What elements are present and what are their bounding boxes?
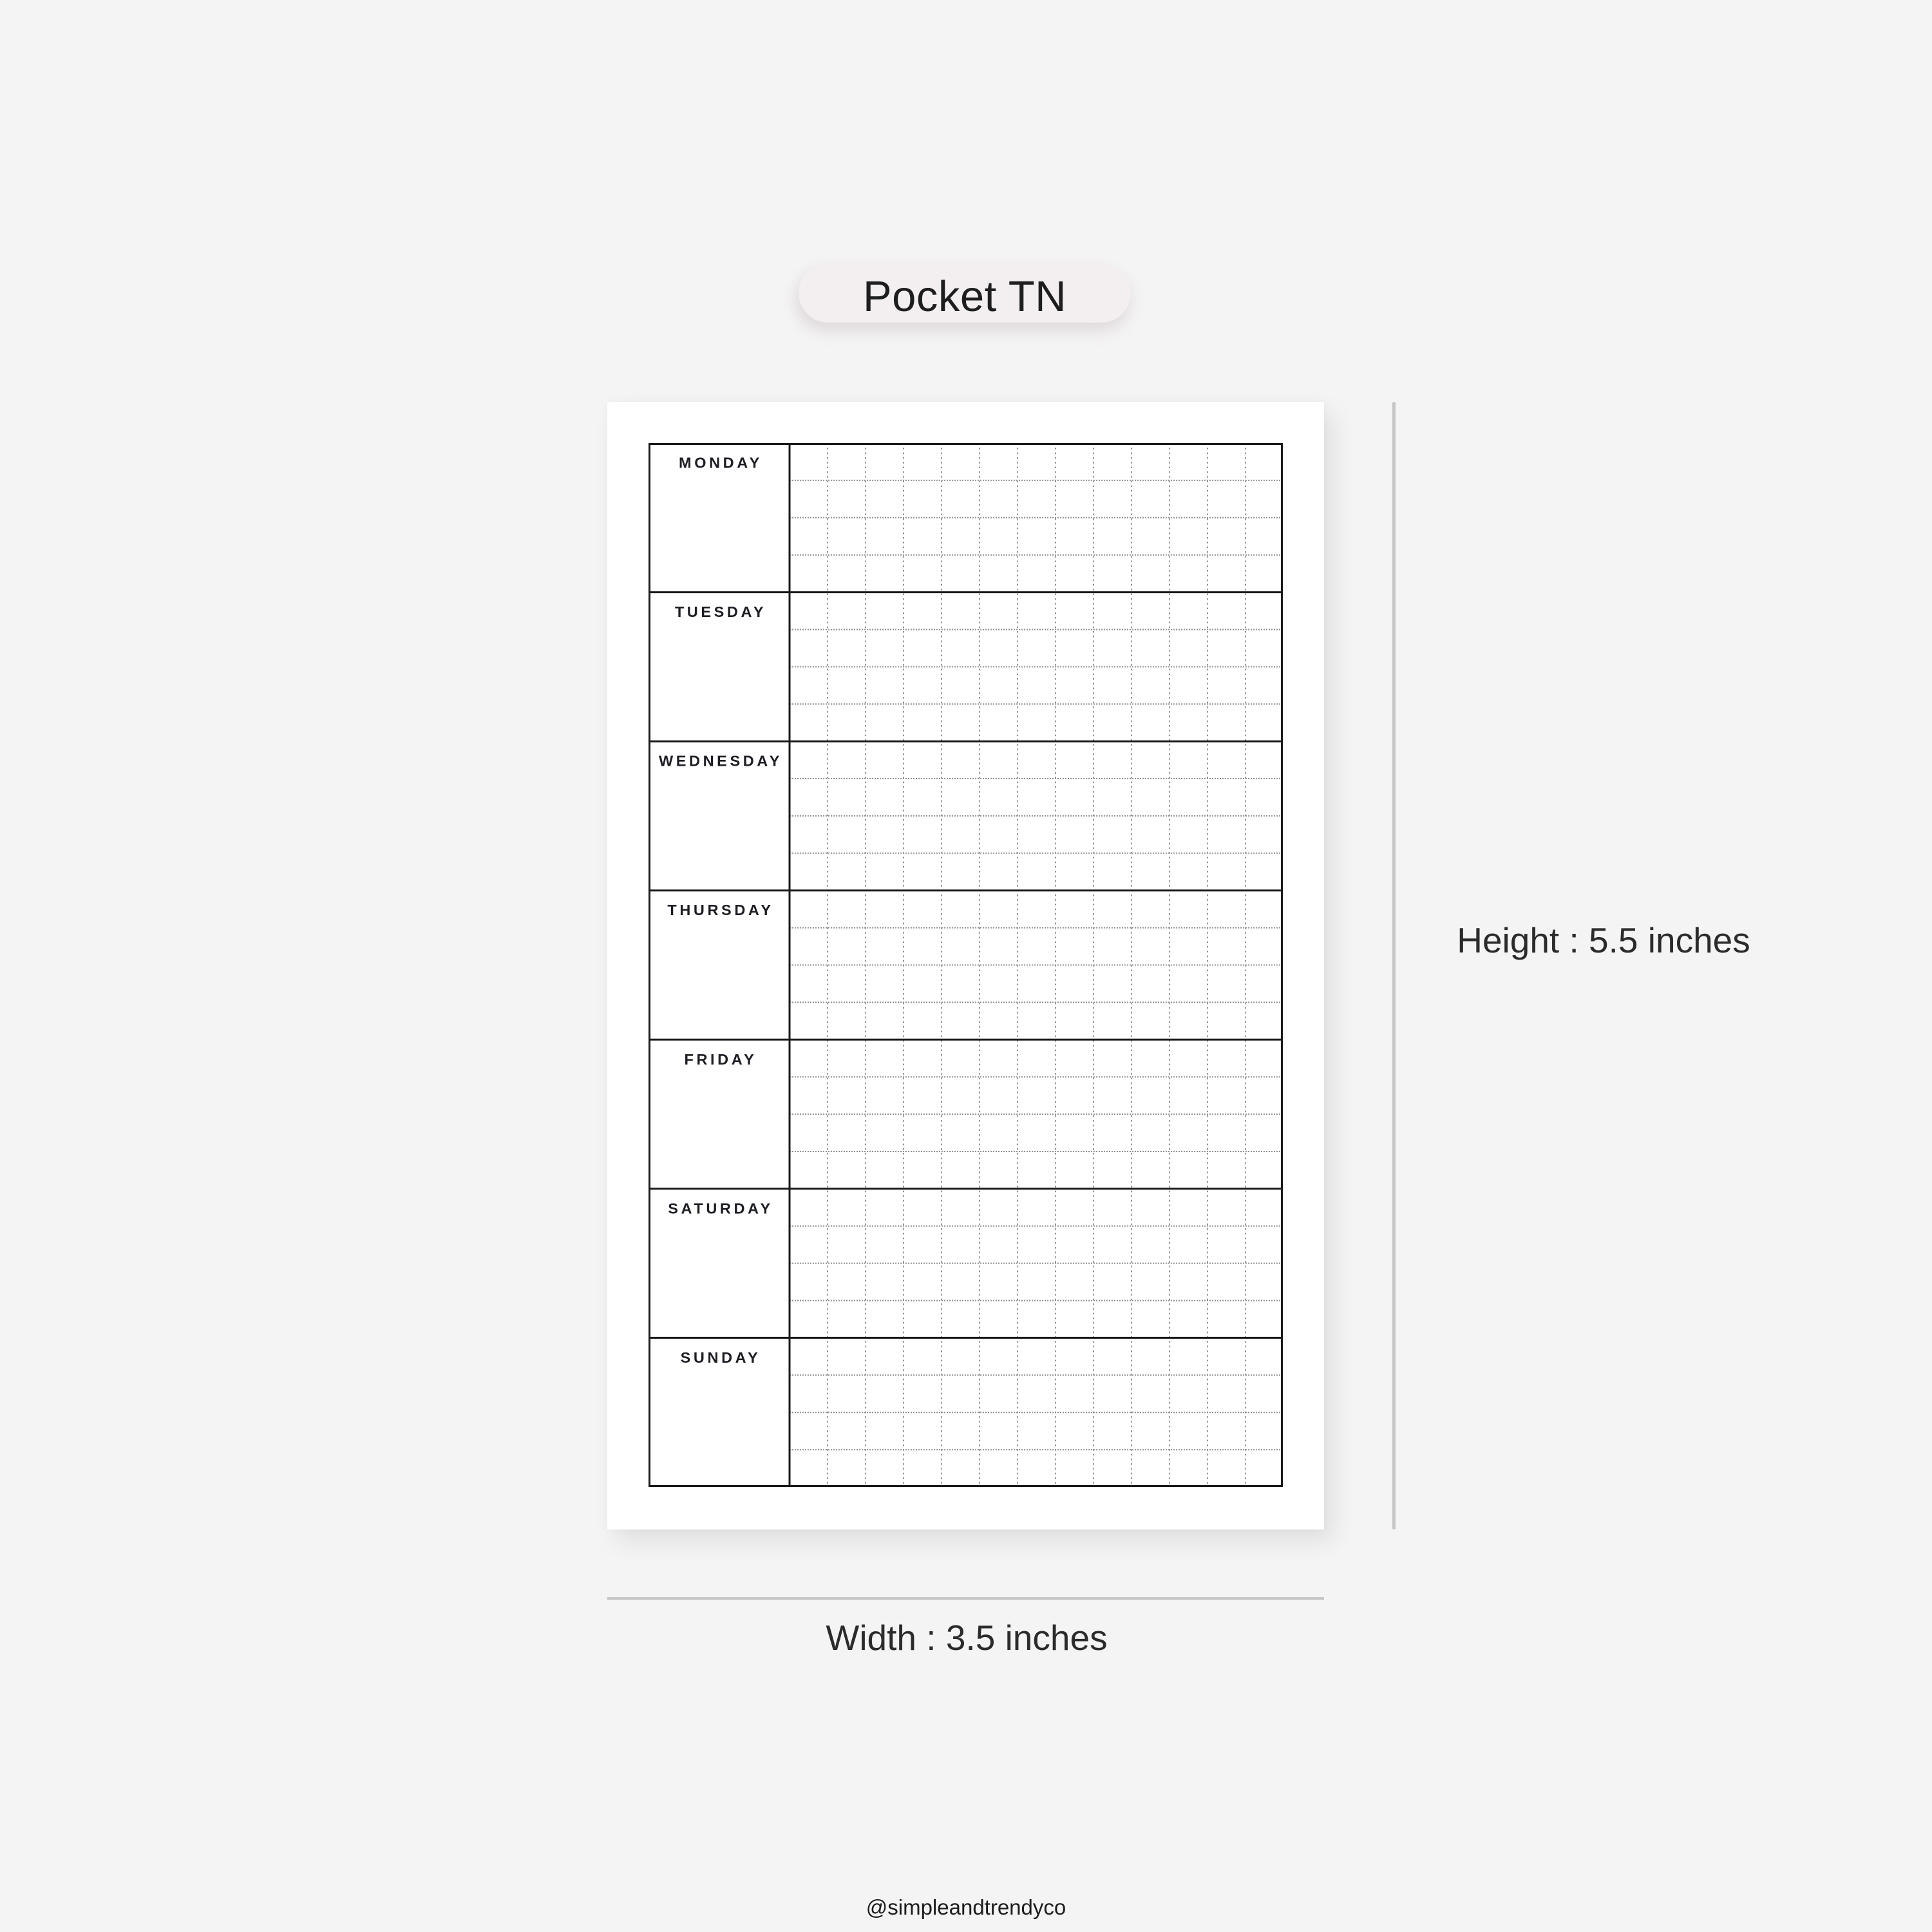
svg-text:FRIDAY: FRIDAY [685,1051,757,1068]
svg-text:THURSDAY: THURSDAY [667,902,773,918]
svg-text:TUESDAY: TUESDAY [675,603,766,620]
svg-text:MONDAY: MONDAY [679,455,762,471]
svg-text:SUNDAY: SUNDAY [681,1349,761,1366]
svg-text:SATURDAY: SATURDAY [668,1200,773,1217]
svg-text:WEDNESDAY: WEDNESDAY [659,753,782,770]
